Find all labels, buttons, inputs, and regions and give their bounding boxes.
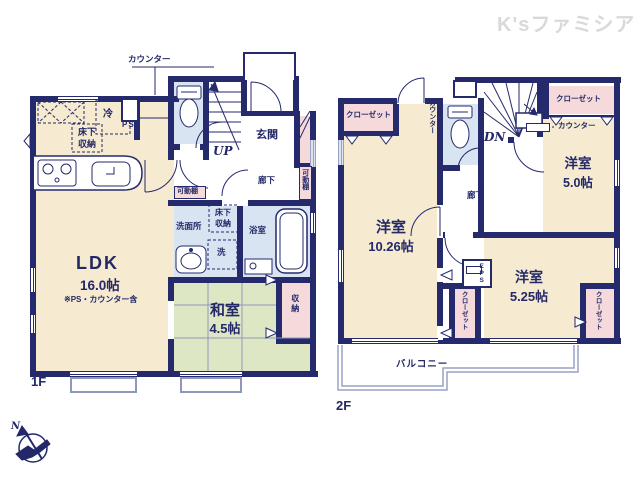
- north-label: N: [11, 421, 20, 432]
- ps-shaft: [122, 99, 138, 121]
- floor1-label: 1F: [31, 375, 46, 389]
- counter-label-1f: カウンター: [128, 55, 171, 64]
- counter-label-2f-vert: カウンター: [428, 99, 436, 134]
- ldk-label: LDK: [76, 254, 119, 274]
- yoshitsu3-size: 5.25帖: [492, 290, 566, 304]
- rouka-label-1f: 廊下: [258, 176, 275, 185]
- laundry-label: 洗: [217, 248, 226, 257]
- stairs-up: [209, 82, 241, 150]
- kadodana-label-left: 可動棚: [177, 188, 198, 196]
- floor2-label: 2F: [336, 399, 351, 413]
- washitsu-label: 和室: [195, 303, 255, 320]
- genkan-label: 玄関: [256, 129, 278, 141]
- closet-label-2f-left: クローゼット: [346, 111, 391, 119]
- toilet-fixture-2f: [448, 106, 472, 148]
- ldk-note: ※PS・カウンター含: [64, 296, 137, 305]
- yoshitsu3-label: 洋室: [496, 270, 562, 285]
- senmenjo-label: 洗面所: [176, 222, 202, 231]
- ldk-size: 16.0帖: [80, 279, 120, 294]
- up-label: UP: [213, 145, 233, 158]
- washbasin: [176, 246, 206, 273]
- closet-label-2f-right: クローゼット: [594, 291, 601, 330]
- eps-label: EPS: [478, 263, 485, 284]
- yokushitsu-label: 浴室: [249, 226, 266, 235]
- hatch-flag: [24, 134, 30, 148]
- bathtub: [245, 209, 307, 274]
- counter-box-2f: [526, 123, 550, 132]
- balcony-outline: [338, 345, 578, 390]
- balcony-label: バルコニー: [396, 360, 448, 370]
- fridge-label: 冷: [103, 109, 113, 120]
- yoshitsu1-label: 洋室: [360, 220, 422, 237]
- ps-label: PS: [122, 121, 135, 130]
- watermark: K'sファミシア: [497, 8, 635, 37]
- counter-leader: [132, 67, 214, 118]
- yoshitsu1-size: 10.26帖: [354, 240, 428, 254]
- toilet-fixture-1f: [177, 86, 201, 127]
- yukashita-label-wash: 床下収納: [214, 208, 232, 230]
- kitchen-counter: [34, 156, 142, 190]
- genkan-closet-lines: [300, 111, 310, 138]
- ps-box-2f: [453, 80, 477, 98]
- closet-label-2f-topright: クローゼット: [556, 95, 601, 103]
- rouka-label-2f: 廊下: [467, 191, 484, 200]
- yukashita-label-kitchen: 床下収納: [77, 126, 97, 150]
- floorplan-annotations: [0, 0, 640, 480]
- dn-label: DN: [484, 131, 505, 144]
- yoshitsu2-label: 洋室: [543, 157, 613, 172]
- kadodana-label-right: 可動棚: [301, 169, 309, 190]
- floorplan: K'sファミシア カウンター 冷 PS 床下収納 LDK 16.0帖 ※PS・カ…: [0, 0, 640, 480]
- shuno-label: 収納: [290, 294, 299, 314]
- yoshitsu2-size: 5.0帖: [543, 177, 613, 191]
- shuno-door-marks: [266, 275, 277, 338]
- closet-label-2f-mid: クローゼット: [460, 291, 467, 330]
- counter-label-2f: カウンター: [558, 122, 596, 130]
- compass-icon: [16, 426, 50, 462]
- washitsu-size: 4.5帖: [195, 322, 255, 336]
- cabinet-icon: [38, 102, 84, 123]
